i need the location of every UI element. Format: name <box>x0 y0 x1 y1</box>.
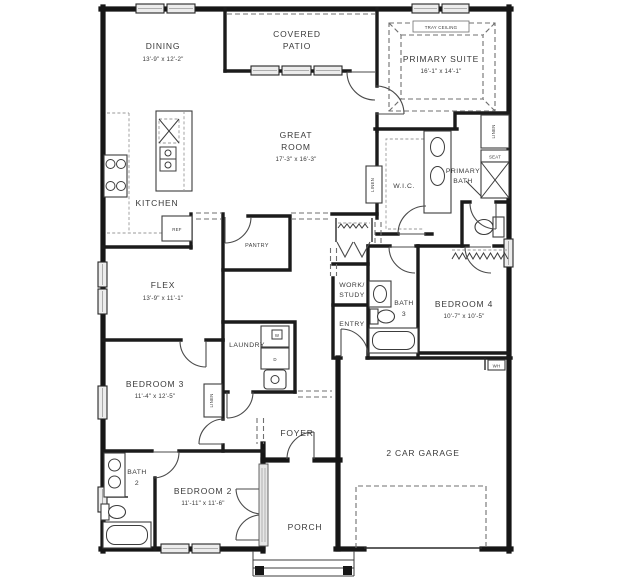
room-label-foyer: FOYER <box>280 428 313 438</box>
linen-label: LINEN <box>209 394 214 408</box>
room-label-covered-patio: PATIO <box>283 41 311 51</box>
room-label-entry: ENTRY <box>339 321 364 328</box>
dryer-label: D <box>273 357 276 362</box>
bedroom3-door-arc <box>180 341 206 367</box>
washer: W <box>261 326 289 347</box>
wic-door-arc <box>398 206 426 234</box>
linen-label: LINEN <box>370 178 375 192</box>
room-label-pantry: PANTRY <box>245 243 269 249</box>
room-dims-bedroom3: 11'-4" x 12'-5" <box>135 393 176 400</box>
room-label-primary-suite: PRIMARY SUITE <box>403 54 479 64</box>
laundry-door-arc <box>227 392 253 418</box>
bath3-bathtub <box>369 328 418 353</box>
room-label-covered-patio: COVERED <box>273 29 321 39</box>
bath2-door-arc <box>153 452 179 478</box>
bath3-toilet <box>370 309 395 324</box>
bath3-door-arc <box>389 247 415 273</box>
kitchen-island <box>156 111 192 191</box>
bath3-vanity <box>369 281 391 307</box>
bath2-bathtub <box>103 522 151 548</box>
room-label-porch: PORCH <box>288 522 323 532</box>
patio-door-arc <box>347 72 375 100</box>
linen-closet-wic: LINEN <box>366 166 382 203</box>
linen-label: LINEN <box>491 125 496 139</box>
linen-closet-primary: LINEN <box>481 115 509 148</box>
room-dims-dining: 13'-9" x 12'-2" <box>142 56 183 63</box>
primary-toilet <box>475 217 504 237</box>
room-label-bath2: BATH <box>127 469 147 476</box>
room-label-bath2: 2 <box>135 480 139 487</box>
porch-post <box>343 566 352 575</box>
exterior-walls <box>101 7 511 551</box>
room-label-flex: FLEX <box>151 280 175 290</box>
room-label-bath3: BATH <box>394 300 414 307</box>
garage-entry-door-arc <box>341 329 368 356</box>
porch-post <box>255 566 264 575</box>
room-label-bath3: 3 <box>402 311 406 318</box>
windows <box>98 4 513 553</box>
dryer: D <box>261 348 289 369</box>
ref-label: REF <box>172 227 181 232</box>
room-dims-great-room: 17'-3" x 16'-3" <box>275 156 316 163</box>
laundry-sink <box>264 370 286 389</box>
bath2-toilet <box>101 504 126 520</box>
room-label-primary-bath: PRIMARY <box>446 168 480 175</box>
wh-label: WH <box>493 364 501 369</box>
room-label-dining: DINING <box>146 41 181 51</box>
room-label-great-room: ROOM <box>281 142 311 152</box>
seat-label: SEAT <box>489 155 501 160</box>
room-label-wic: W.I.C. <box>393 183 415 190</box>
bath2-vanity <box>104 453 125 497</box>
room-dims-primary-suite: 16'-1" x 14'-1" <box>420 68 461 75</box>
linen-closet-bedroom3: LINEN <box>204 384 222 417</box>
washer-label: W <box>275 333 280 338</box>
room-label-work-study: STUDY <box>339 292 365 299</box>
room-label-bedroom3: BEDROOM 3 <box>126 379 184 389</box>
refrigerator: REF <box>162 216 192 241</box>
room-label-work-study: WORK/ <box>339 282 365 289</box>
room-dims-bedroom2: 11'-11" x 11'-6" <box>181 500 224 507</box>
garage-door-opening <box>356 486 486 548</box>
room-labels: DINING 13'-9" x 12'-2" COVERED PATIO PRI… <box>126 29 493 532</box>
room-label-bedroom4: BEDROOM 4 <box>435 299 493 309</box>
shower-seat: SEAT <box>481 150 509 162</box>
room-label-laundry: LAUNDRY <box>229 342 265 349</box>
hall-door-arc <box>199 419 224 444</box>
bedroom2-door-arc <box>236 515 262 540</box>
floor-plan-svg: TRAY CEILING REF LINEN LINEN <box>0 0 617 582</box>
room-label-bedroom2: BEDROOM 2 <box>174 486 232 496</box>
room-label-great-room: GREAT <box>280 130 313 140</box>
pantry-door-arc <box>225 217 251 243</box>
interior-walls <box>103 9 511 549</box>
bedroom4-closet-rod <box>452 250 508 259</box>
bedroom2-door-arc <box>236 489 262 514</box>
tray-ceiling-label: TRAY CEILING <box>425 25 458 30</box>
front-sidelight <box>259 464 268 546</box>
room-dims-bedroom4: 10'-7" x 10'-5" <box>443 313 484 320</box>
room-label-primary-bath: BATH <box>453 178 473 185</box>
room-label-garage: 2 CAR GARAGE <box>386 448 459 458</box>
bedroom4-door-arc <box>465 247 491 273</box>
range-cooktop <box>104 155 127 197</box>
tray-ceiling-outline: TRAY CEILING <box>389 21 495 111</box>
room-dims-flex: 13'-9" x 11'-1" <box>143 295 184 302</box>
water-heater: WH <box>485 358 505 370</box>
room-label-kitchen: KITCHEN <box>136 198 179 208</box>
floor-plan-page: TRAY CEILING REF LINEN LINEN <box>0 0 617 582</box>
